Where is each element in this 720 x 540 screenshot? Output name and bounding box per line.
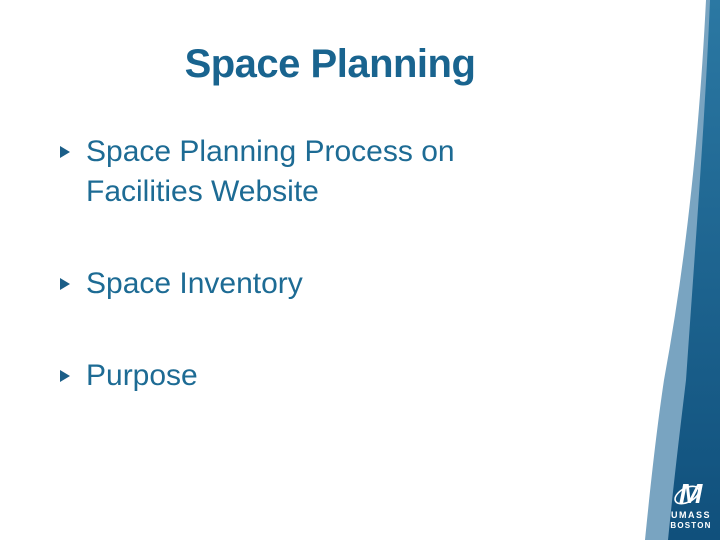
list-item: Space Planning Process on Facilities Web… — [60, 132, 510, 212]
right-accent-bar — [640, 0, 720, 540]
list-item: Space Inventory — [60, 264, 510, 304]
list-item: Purpose — [60, 356, 510, 396]
logo-text-boston: BOSTON — [670, 521, 711, 530]
page-title: Space Planning — [0, 42, 660, 87]
bullet-list: Space Planning Process on Facilities Web… — [60, 132, 510, 448]
bullet-text: Purpose — [86, 359, 198, 392]
triangle-bullet-icon — [60, 146, 70, 158]
umass-m-icon: M — [671, 478, 711, 508]
triangle-bullet-icon — [60, 370, 70, 382]
logo-text-umass: UMASS — [671, 510, 711, 520]
bullet-text: Space Inventory — [86, 267, 303, 300]
slide-canvas: Space Planning Space Planning Process on… — [0, 0, 720, 540]
umass-boston-logo: M UMASS BOSTON — [668, 478, 714, 530]
triangle-bullet-icon — [60, 278, 70, 290]
bullet-text: Space Planning Process on Facilities Web… — [86, 135, 455, 208]
